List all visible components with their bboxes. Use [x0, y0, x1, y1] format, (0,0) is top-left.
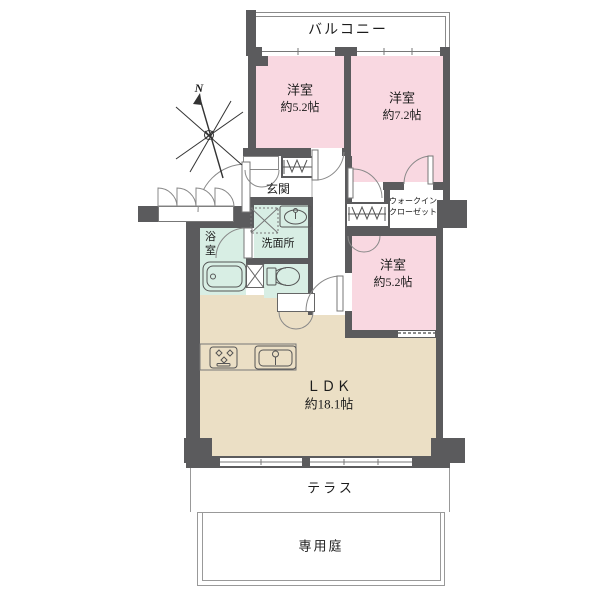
wall: [186, 222, 200, 456]
window-icon: [220, 458, 302, 466]
doorway: [345, 273, 352, 311]
terrace-label: テラス: [307, 482, 355, 497]
window-icon: [310, 458, 412, 466]
ldk-size: 約18.1帖: [305, 398, 354, 413]
wall: [345, 228, 437, 236]
pipe-space: [246, 264, 264, 288]
bedroom3-closet: [345, 202, 390, 228]
doorway: [311, 148, 342, 156]
wall: [200, 222, 254, 228]
wall: [243, 197, 312, 205]
bedroom1-size: 約5.2帖: [280, 101, 319, 115]
partition-dashed: [398, 331, 435, 337]
bedroom3-size: 約5.2帖: [373, 276, 412, 290]
entrance-label: 玄関: [266, 183, 290, 197]
bedroom2-name: 洋室: [389, 92, 415, 107]
doorway: [404, 182, 433, 190]
window-icon: [357, 47, 440, 56]
bedroom3-name: 洋室: [380, 259, 406, 274]
wall: [437, 200, 467, 228]
walk-in-closet-label-1: ウォークイン: [389, 196, 437, 205]
coat-closet: [281, 156, 315, 178]
hallway: [312, 156, 345, 315]
bedroom1-name: 洋室: [287, 84, 313, 99]
wall: [138, 206, 160, 222]
wall: [248, 52, 256, 156]
wall: [443, 47, 450, 204]
north-compass-icon: [176, 93, 243, 178]
floor-plan: バルコニー 洋室 約5.2帖 洋室 約7.2帖 洋室 約5.2帖 玄関 洗面所 …: [0, 0, 600, 600]
wall: [436, 228, 443, 440]
walk-in-closet-label-2: クローゼット: [389, 207, 437, 216]
bathroom-label: 浴室: [205, 230, 218, 258]
entrance-closet: [243, 156, 279, 170]
bedroom2-size: 約7.2帖: [382, 109, 421, 123]
washroom-label: 洗面所: [262, 238, 295, 251]
terrace-side-line: [190, 468, 191, 512]
wall: [344, 47, 351, 156]
ldk-name: ＬＤＫ: [307, 380, 352, 396]
shoe-cabinet: [158, 206, 234, 222]
doorway: [352, 182, 383, 190]
ldk-closet: [277, 293, 315, 312]
terrace-side-line: [449, 468, 450, 512]
wall: [246, 10, 256, 52]
balcony-label: バルコニー: [308, 23, 388, 39]
folding-door-icon: [158, 188, 234, 206]
north-label: N: [195, 82, 204, 96]
window-icon: [262, 47, 335, 56]
garden-label: 専用庭: [298, 540, 343, 555]
